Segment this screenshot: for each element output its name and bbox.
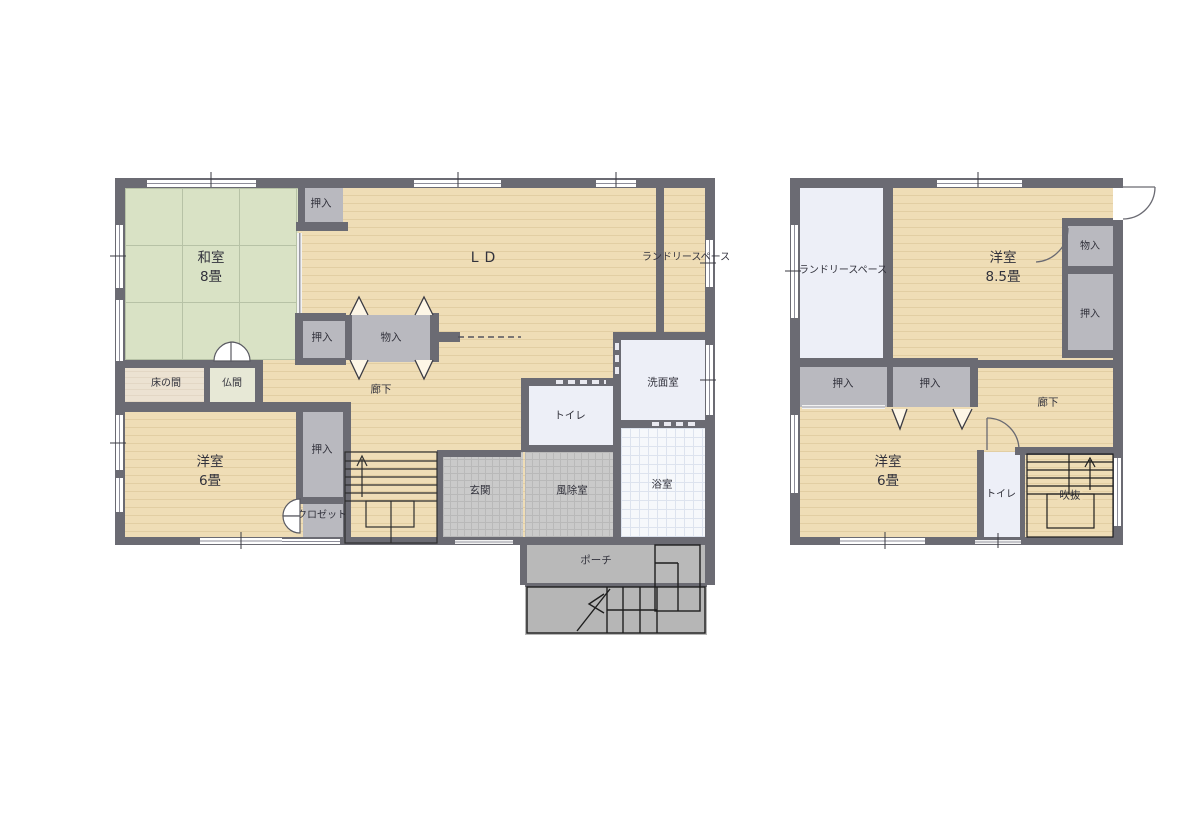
exterior-staircase-icon	[527, 545, 705, 633]
plan-symbols-overlay	[0, 0, 1200, 813]
double-door-icon	[214, 342, 250, 361]
folding-door-icon	[892, 409, 972, 429]
double-door-icon	[283, 499, 300, 533]
staircase-up-icon	[1027, 454, 1113, 537]
floorplan-canvas: 和室 8畳 押入 LD ランドリースペース 押入 物入 床の間 仏間 廊下 洗面…	[0, 0, 1200, 813]
staircase-up-icon	[345, 452, 437, 543]
open-boundary-dashes	[458, 337, 700, 424]
door-swing-icon	[987, 187, 1155, 450]
folding-door-icon	[350, 297, 433, 379]
